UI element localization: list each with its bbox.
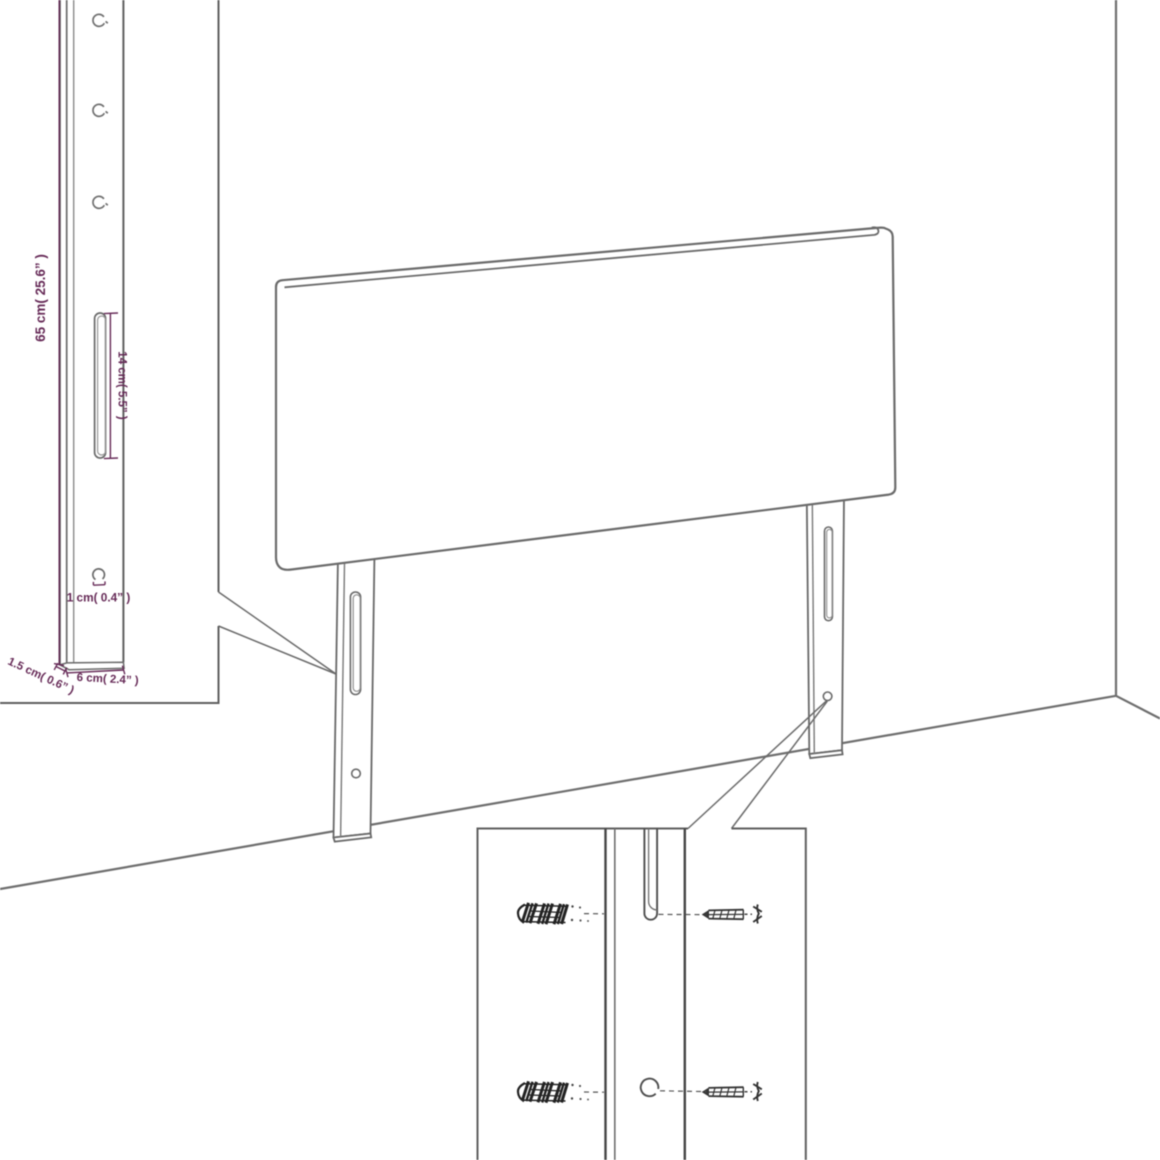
svg-text:65 cm( 25.6” ): 65 cm( 25.6” ) (33, 254, 48, 342)
svg-text:14 cm( 5.5” ): 14 cm( 5.5” ) (116, 351, 128, 420)
svg-text:1 cm( 0.4” ): 1 cm( 0.4” ) (67, 591, 131, 605)
